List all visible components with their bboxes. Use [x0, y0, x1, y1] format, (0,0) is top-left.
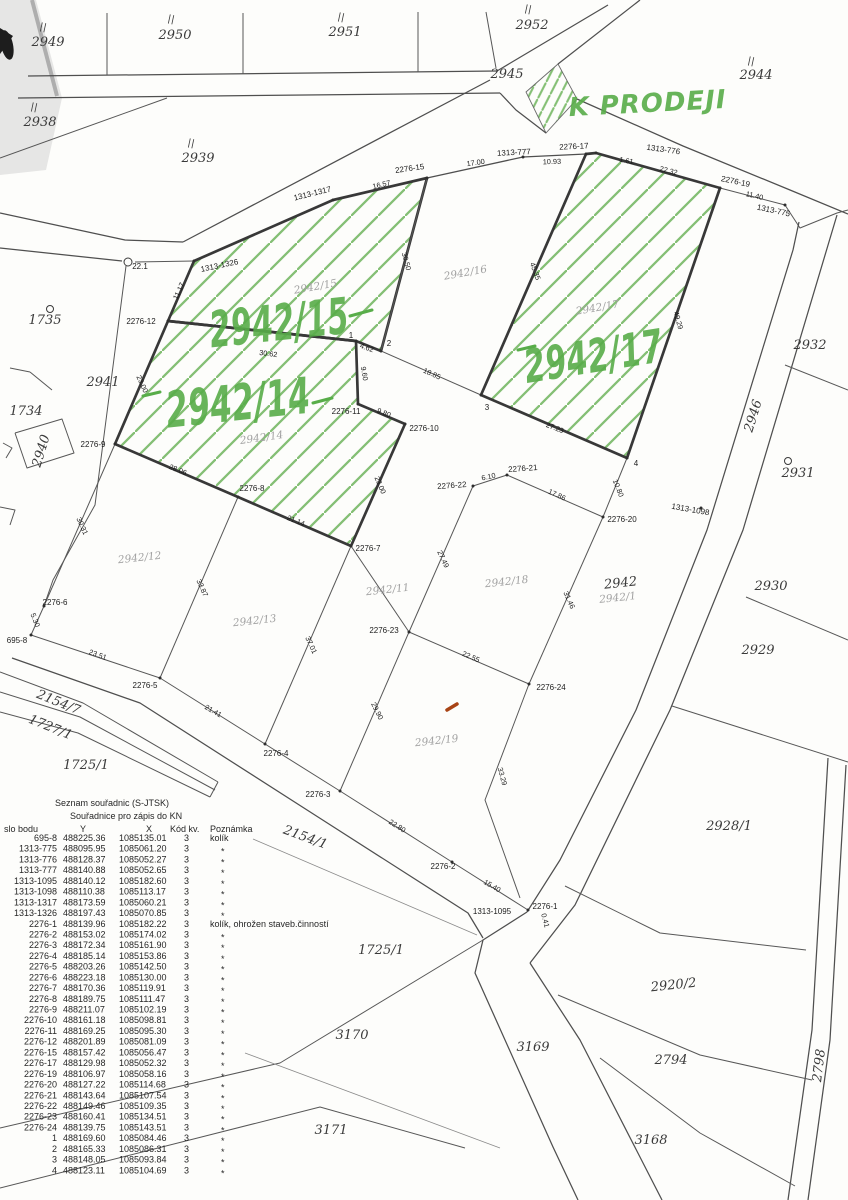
coord-row-note: *: [221, 900, 225, 910]
coord-row-note: *: [221, 1104, 225, 1114]
coord-row-note: *: [221, 1072, 225, 1082]
coord-row-x: 1085084.46: [119, 1133, 167, 1143]
parcel-number-small-label: 2942/11: [364, 582, 410, 599]
coord-row-point-id: 1313-1317: [14, 897, 57, 907]
parcel-number-label: 2798: [810, 1048, 829, 1084]
table-subtitle: Souřadnice pro zápis do KN: [70, 811, 182, 821]
coord-row-point-id: 2276-23: [24, 1112, 57, 1122]
control-point-circle: [47, 306, 54, 313]
parcel-boundary-line: [746, 597, 848, 640]
parcel-number-small-label: 2942/19: [413, 733, 459, 750]
parcel-number-small-label: 2942/18: [483, 574, 529, 591]
measurement-label: 22.55: [461, 649, 481, 664]
survey-point-label: 2276-15: [394, 162, 425, 175]
parcel-boundary-line: [0, 507, 15, 525]
coord-row-x: 1085056.47: [119, 1047, 167, 1057]
coord-row-y: 488189.75: [63, 994, 106, 1004]
parcel-number-label: 2941: [85, 375, 119, 390]
coord-row-x: 1085052.65: [119, 865, 167, 875]
coord-row-y: 488127.22: [63, 1080, 106, 1090]
coord-row-x: 1085182.22: [119, 919, 167, 929]
coord-row-y: 488153.02: [63, 929, 106, 939]
parcel-boundary-line: [486, 12, 496, 68]
coord-row-kod: 3: [184, 940, 189, 950]
coord-row-note: *: [221, 879, 225, 889]
coord-row-x: 1085142.50: [119, 962, 167, 972]
coord-row-point-id: 1: [52, 1133, 57, 1143]
coord-row-x: 1085153.86: [119, 951, 167, 961]
coord-row-note: kolík: [210, 833, 229, 843]
survey-point-label: 2: [387, 339, 392, 348]
coord-row-kod: 3: [184, 1080, 189, 1090]
coord-row-y: 488139.96: [63, 919, 106, 929]
parcel-number-label: 2946: [741, 398, 765, 435]
coord-row-kod: 3: [184, 951, 189, 961]
measurement-label: 11.40: [745, 189, 764, 202]
survey-point-dot: [264, 743, 267, 746]
measurement-label: 15.40: [482, 877, 502, 894]
coord-row-kod: 3: [184, 844, 189, 854]
coord-row-note: *: [221, 1040, 225, 1050]
coord-row-x: 1085104.69: [119, 1165, 167, 1175]
survey-point-label: 2276-8: [240, 484, 265, 493]
parcel-boundary-line: [30, 372, 52, 390]
coord-row-y: 488123.11: [63, 1165, 105, 1175]
coord-row-kod: 3: [184, 1101, 189, 1111]
survey-point-label: 2276-2: [431, 862, 456, 871]
coord-row-x: 1085095.30: [119, 1026, 167, 1036]
coord-row-note: *: [221, 965, 225, 975]
coord-row-point-id: 2276-8: [29, 994, 57, 1004]
coord-row-note: *: [221, 1125, 225, 1135]
coord-row-kod: 3: [184, 854, 189, 864]
coord-row-kod: 3: [184, 1058, 189, 1068]
coord-row-kod: 3: [184, 908, 189, 918]
parcel-number-label: 1727/1: [26, 712, 74, 743]
survey-point-dot: [193, 260, 196, 263]
road-line: [808, 765, 846, 1200]
parcel-number-label: 2938: [22, 115, 56, 130]
coord-row-point-id: 1313-776: [19, 854, 57, 864]
coord-row-kod: 3: [184, 1069, 189, 1079]
parcel-number-label: 2939: [180, 151, 214, 166]
measurement-label: 0.41: [539, 912, 551, 928]
road-line: [0, 213, 183, 242]
parcel-number-label: 3171: [314, 1123, 347, 1138]
measurement-label: 33.29: [496, 766, 509, 786]
road-line: [18, 93, 500, 98]
parcel-number-small-label: 2942/16: [442, 263, 488, 283]
coord-row-point-id: 2276-15: [24, 1047, 57, 1057]
parcel-number-small-label: 2942/1: [598, 590, 637, 606]
survey-point-label: 695-8: [7, 636, 28, 645]
survey-point-dot: [426, 177, 429, 180]
coord-row-kod: 3: [184, 887, 189, 897]
road-line: [0, 248, 122, 261]
note-leader-line: [245, 1053, 500, 1148]
coord-row-y: 488225.36: [63, 833, 106, 843]
coord-row-x: 1085135.01: [119, 833, 167, 843]
coord-row-note: *: [221, 1115, 225, 1125]
coord-row-note: *: [221, 997, 225, 1007]
coord-row-x: 1085052.27: [119, 854, 167, 864]
coord-row-note: *: [221, 1061, 225, 1071]
coord-row-y: 488173.59: [63, 897, 106, 907]
survey-point-dot: [114, 443, 117, 446]
survey-point-label: 3: [485, 403, 490, 412]
parcel-number-label: 3168: [634, 1133, 667, 1148]
parcel-number-label: 2940: [29, 433, 53, 470]
coord-row-y: 488157.42: [63, 1047, 106, 1057]
survey-point-label: 1313-777: [497, 147, 532, 158]
road-line: [427, 154, 586, 178]
coord-row-x: 1085052.32: [119, 1058, 167, 1068]
coord-row-note: *: [221, 1029, 225, 1039]
measurement-label: 23.51: [88, 647, 108, 662]
parcel-number-label: 1725/1: [63, 758, 109, 773]
survey-point-dot: [595, 152, 598, 155]
coord-row-x: 1085058.16: [119, 1069, 167, 1079]
coord-row-kod: 3: [184, 1144, 189, 1154]
coord-row-x: 1085174.02: [119, 929, 167, 939]
coordinate-table-layer: Seznam souřadnic (S-JTSK)Souřadnice pro …: [4, 798, 329, 1178]
coord-row-note: *: [221, 932, 225, 942]
parcel-boundary-line: [10, 368, 30, 372]
coord-row-y: 488201.89: [63, 1037, 106, 1047]
coord-row-note: *: [221, 1158, 225, 1168]
survey-point-dot: [626, 457, 629, 460]
coord-row-y: 488139.75: [63, 1122, 106, 1132]
coord-row-note: *: [221, 975, 225, 985]
control-point-circle: [785, 458, 792, 465]
survey-point-dot: [339, 790, 342, 793]
coord-row-y: 488095.95: [63, 844, 106, 854]
parcel-boundary-line: [485, 684, 529, 898]
coord-row-kod: 3: [184, 1047, 189, 1057]
land-use-mark: ||: [39, 21, 48, 33]
coord-row-point-id: 2276-4: [29, 951, 57, 961]
measurement-label: 17.00: [466, 157, 485, 168]
cadastral-map-canvas: 2949295029512952294529442938293929411735…: [0, 0, 848, 1200]
parcel-number-label: 3169: [516, 1040, 549, 1055]
coord-row-note: *: [221, 954, 225, 964]
coord-row-point-id: 1313-1095: [14, 876, 57, 886]
survey-point-dot: [719, 187, 722, 190]
coord-row-point-id: 2276-3: [29, 940, 57, 950]
coord-row-y: 488161.18: [63, 1015, 106, 1025]
coord-row-y: 488203.26: [63, 962, 106, 972]
survey-point-dot: [408, 631, 411, 634]
scanned-cadastral-map-page: 2949295029512952294529442938293929411735…: [0, 0, 848, 1200]
coord-row-point-id: 2276-6: [29, 972, 57, 982]
coord-row-kod: 3: [184, 1165, 189, 1175]
coord-row-x: 1085102.19: [119, 1005, 167, 1015]
coord-row-note: *: [221, 1093, 225, 1103]
coord-row-point-id: 2276-24: [24, 1122, 57, 1132]
parcel-boundary-line: [0, 692, 215, 790]
land-use-mark: ||: [187, 137, 196, 149]
coord-row-point-id: 2: [52, 1144, 57, 1154]
coord-row-point-id: 2276-20: [24, 1080, 57, 1090]
parcel-boundary-line: [473, 475, 603, 517]
coord-row-kod: 3: [184, 994, 189, 1004]
coord-row-y: 488170.36: [63, 983, 106, 993]
coord-row-note: *: [221, 890, 225, 900]
hatched-parcels-layer: [115, 64, 720, 546]
survey-point-label: 2276-3: [306, 790, 331, 799]
coord-row-point-id: 1313-1098: [14, 887, 57, 897]
road-line: [788, 758, 828, 1200]
coord-row-point-id: 2276-22: [24, 1101, 57, 1111]
coord-row-x: 1085161.90: [119, 940, 167, 950]
coord-row-y: 488211.07: [63, 1005, 105, 1015]
coord-row-note: *: [221, 857, 225, 867]
survey-point-dot: [332, 199, 335, 202]
coord-row-x: 1085113.17: [119, 887, 166, 897]
parcel-boundary-line: [785, 365, 848, 390]
coord-row-y: 488140.12: [63, 876, 106, 886]
red-pen-mark: [447, 704, 457, 710]
coord-row-y: 488110.38: [63, 887, 105, 897]
survey-point-label: 2276-4: [264, 749, 289, 758]
survey-point-label: 2276-10: [409, 424, 439, 433]
measurement-label: 33.87: [194, 578, 210, 598]
measurement-label: 31.46: [561, 590, 577, 610]
survey-point-dot: [30, 634, 33, 637]
coord-row-note: *: [221, 1050, 225, 1060]
survey-point-dot: [159, 677, 162, 680]
survey-point-label: 2276-9: [81, 440, 106, 449]
coord-row-x: 1085060.21: [119, 897, 167, 907]
survey-point-label: 2276-12: [126, 317, 156, 326]
parcel-boundary-line: [672, 706, 848, 762]
control-point-circle: [124, 258, 132, 266]
survey-point-label: 2276-21: [508, 463, 538, 474]
coord-row-x: 1085070.85: [119, 908, 167, 918]
coord-row-kod: 3: [184, 1090, 189, 1100]
coord-row-kod: 3: [184, 1037, 189, 1047]
measurement-label: 17.86: [547, 487, 567, 503]
survey-point-label: 2276-7: [356, 544, 381, 553]
survey-point-dot: [602, 516, 605, 519]
parcel-number-label: 2944: [738, 68, 772, 83]
table-header-id: slo bodu: [4, 824, 38, 834]
measurement-label: 10.80: [611, 478, 626, 498]
coord-row-y: 488106.97: [63, 1069, 106, 1079]
coord-row-point-id: 2276-12: [24, 1037, 57, 1047]
survey-point-dot: [350, 545, 353, 548]
road-line: [28, 71, 497, 76]
coord-row-point-id: 2276-9: [29, 1005, 57, 1015]
coord-row-x: 1085061.20: [119, 844, 167, 854]
coord-row-point-id: 2276-19: [24, 1069, 57, 1079]
coord-row-point-id: 2276-2: [29, 929, 57, 939]
survey-point-dot: [380, 350, 383, 353]
coord-row-point-id: 2276-1: [29, 919, 57, 929]
parcel-number-label: 2950: [157, 28, 191, 43]
measurement-label: 6.10: [481, 471, 497, 483]
parcel-boundary-line: [785, 205, 848, 228]
coord-row-x: 1085098.81: [119, 1015, 167, 1025]
parcel-number-small-label: 2942/13: [231, 613, 277, 630]
coord-row-note: *: [221, 1136, 225, 1146]
parcel-number-label: 1735: [28, 313, 61, 328]
survey-point-dot: [784, 204, 787, 207]
coord-row-point-id: 2276-7: [29, 983, 57, 993]
coord-row-kod: 3: [184, 972, 189, 982]
parcel-number-label: 2931: [780, 466, 814, 481]
coord-row-note: *: [221, 847, 225, 857]
coord-row-point-id: 1313-777: [19, 865, 57, 875]
road-line: [558, 0, 640, 64]
parcel-number-small-label: 2942/12: [116, 550, 162, 567]
parcel-number-label: 1734: [9, 404, 42, 419]
survey-point-label: 2276-5: [133, 681, 158, 690]
scan-smudge: [0, 0, 62, 175]
survey-point-label: 2276-20: [607, 515, 637, 524]
measurement-label: 18.85: [422, 366, 442, 382]
parcel-number-label: 2945: [489, 67, 523, 82]
coord-row-y: 488148.05: [63, 1155, 106, 1165]
survey-point-dot: [357, 403, 360, 406]
coord-row-note: *: [221, 1147, 225, 1157]
coord-row-x: 1085114.68: [119, 1080, 166, 1090]
survey-point-label: 2276-23: [369, 626, 399, 635]
survey-point-label: 2276-6: [43, 598, 68, 607]
coord-row-note: *: [221, 1168, 225, 1178]
coord-row-kod: 3: [184, 897, 189, 907]
coord-row-note: *: [221, 868, 225, 878]
coord-row-point-id: 3: [52, 1155, 57, 1165]
measurement-label: 9.60: [359, 366, 370, 382]
land-use-mark: ||: [747, 55, 756, 67]
coord-row-kod: 3: [184, 1005, 189, 1015]
survey-point-label: 22.1: [132, 262, 148, 271]
coord-row-kod: 3: [184, 1026, 189, 1036]
coord-row-x: 1085093.84: [119, 1155, 167, 1165]
coord-row-x: 1085130.00: [119, 972, 167, 982]
survey-point-dot: [472, 485, 475, 488]
parcel-number-label: 2951: [327, 25, 361, 40]
land-use-mark: ||: [524, 3, 533, 15]
survey-point-dot: [527, 909, 530, 912]
parcel-number-label: 3170: [335, 1028, 368, 1043]
survey-point-label: 1313-776: [646, 143, 681, 157]
survey-point-dot: [237, 496, 240, 499]
coord-row-x: 1085143.51: [119, 1122, 167, 1132]
coord-row-x: 1085109.35: [119, 1101, 167, 1111]
coord-row-kod: 3: [184, 962, 189, 972]
parcel-number-label: 2920/2: [649, 976, 697, 996]
measurement-label: 10.93: [543, 157, 562, 167]
coord-row-kod: 3: [184, 1155, 189, 1165]
survey-point-dot: [404, 423, 407, 426]
parcel-number-label: 2154/1: [280, 822, 329, 852]
coord-row-note: *: [221, 943, 225, 953]
coord-row-kod: 3: [184, 1122, 189, 1132]
coord-row-x: 1085081.09: [119, 1037, 167, 1047]
coord-row-note: *: [221, 1083, 225, 1093]
coord-row-kod: 3: [184, 919, 189, 929]
coord-row-note: kolík, ohrožen staveb.činností: [210, 919, 329, 929]
parcel-number-label: 2932: [792, 338, 826, 353]
coord-row-point-id: 1313-775: [19, 844, 57, 854]
measurement-label: 21.41: [203, 702, 223, 719]
survey-point-label: 2276-1: [533, 902, 558, 911]
coord-row-kod: 3: [184, 929, 189, 939]
coord-row-x: 1085182.60: [119, 876, 167, 886]
survey-point-dot: [480, 394, 483, 397]
coord-row-point-id: 2276-11: [25, 1026, 57, 1036]
coord-row-kod: 3: [184, 1133, 189, 1143]
coord-row-point-id: 1313-1326: [14, 908, 57, 918]
coord-row-y: 488185.14: [63, 951, 106, 961]
coord-row-y: 488140.88: [63, 865, 106, 875]
land-use-mark: ||: [337, 11, 346, 23]
parcel-number-label: 2949: [30, 35, 64, 50]
coord-row-x: 1085111.47: [119, 994, 165, 1004]
coord-row-kod: 3: [184, 1112, 189, 1122]
survey-point-label: 1313-1317: [293, 184, 333, 202]
coord-row-y: 488165.33: [63, 1144, 106, 1154]
coord-row-point-id: 2276-10: [24, 1015, 57, 1025]
parcel-number-label: 2928/1: [705, 819, 752, 834]
parcel-boundary-line: [3, 443, 12, 458]
parcel-number-label: 1725/1: [358, 943, 404, 958]
survey-point-label: 1313-1095: [473, 907, 512, 916]
coord-row-y: 488128.37: [63, 854, 106, 864]
coord-row-y: 488143.64: [63, 1090, 106, 1100]
road-line: [530, 963, 662, 1200]
coord-row-kod: 3: [184, 833, 189, 843]
survey-point-dot: [585, 153, 588, 156]
coord-row-y: 488149.46: [63, 1101, 106, 1111]
coord-row-note: *: [221, 1018, 225, 1028]
scan-artifacts: [0, 0, 62, 175]
land-use-mark: ||: [167, 13, 176, 25]
survey-point-label: 2276-11: [332, 407, 361, 416]
coord-row-note: *: [221, 1008, 225, 1018]
coord-row-point-id: 4: [52, 1165, 57, 1175]
coord-row-y: 488129.98: [63, 1058, 106, 1068]
coord-row-point-id: 2276-5: [29, 962, 57, 972]
measurement-label: 37.01: [303, 635, 319, 655]
coord-row-x: 1085119.91: [119, 983, 166, 993]
handwritten-green-label: K PRODEJI: [568, 85, 727, 123]
survey-point-label: 2276-24: [536, 683, 566, 692]
coord-row-y: 488169.60: [63, 1133, 106, 1143]
coord-row-y: 488197.43: [63, 908, 106, 918]
coord-row-x: 1085134.51: [119, 1112, 167, 1122]
survey-point-dot: [528, 683, 531, 686]
coord-row-point-id: 2276-21: [24, 1090, 57, 1100]
coord-row-y: 488172.34: [63, 940, 106, 950]
coord-row-y: 488160.41: [63, 1112, 106, 1122]
survey-point-label: 2276-22: [437, 480, 467, 491]
survey-point-dot: [355, 340, 358, 343]
coord-row-kod: 3: [184, 983, 189, 993]
parcel-number-label: 2930: [753, 579, 787, 594]
coord-row-y: 488223.18: [63, 972, 106, 982]
survey-point-label: 2276-19: [720, 174, 751, 189]
parcel-boundary-line: [600, 1058, 795, 1186]
road-line: [475, 912, 578, 1200]
parcel-boundary-line: [565, 886, 806, 950]
coord-row-kod: 3: [184, 876, 189, 886]
coord-row-y: 488169.25: [63, 1026, 106, 1036]
survey-point-dot: [167, 320, 170, 323]
coord-row-x: 1085107.54: [119, 1090, 167, 1100]
